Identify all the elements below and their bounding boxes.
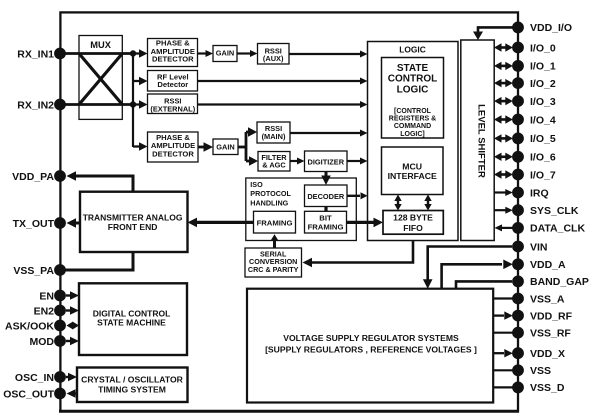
- svg-text:VSS_PA: VSS_PA: [13, 265, 54, 277]
- svg-text:LOGIC: LOGIC: [399, 45, 426, 55]
- svg-text:[SUPPLY REGULATORS , REFERENC: [SUPPLY REGULATORS , REFERENCE VOLTAGES …: [265, 345, 477, 355]
- svg-text:VOLTAGE SUPPLY REGULATOR SYSTE: VOLTAGE SUPPLY REGULATOR SYSTEMS: [283, 333, 459, 343]
- svg-text:128 BYTE: 128 BYTE: [393, 212, 433, 222]
- svg-text:MCU: MCU: [402, 161, 422, 171]
- svg-text:REGISTERS &: REGISTERS &: [389, 116, 436, 123]
- svg-text:CRYSTAL / OSCILLATOR: CRYSTAL / OSCILLATOR: [81, 375, 183, 385]
- svg-text:Detector: Detector: [157, 80, 188, 89]
- svg-text:RX_IN1: RX_IN1: [17, 48, 54, 60]
- svg-text:FRAMING: FRAMING: [257, 219, 293, 228]
- svg-text:GAIN: GAIN: [216, 49, 234, 58]
- svg-text:FRAMING: FRAMING: [308, 222, 344, 231]
- svg-text:I/O_7: I/O_7: [530, 169, 556, 181]
- svg-text:ASK/OOK: ASK/OOK: [5, 320, 54, 332]
- svg-text:STATE MACHINE: STATE MACHINE: [97, 318, 166, 328]
- svg-text:SYS_CLK: SYS_CLK: [530, 205, 579, 217]
- svg-text:TX_OUT: TX_OUT: [13, 218, 55, 230]
- svg-text:DETECTOR: DETECTOR: [152, 54, 194, 63]
- svg-text:EN: EN: [39, 290, 54, 302]
- svg-text:VDD_RF: VDD_RF: [530, 310, 573, 322]
- svg-text:DATA_CLK: DATA_CLK: [530, 223, 585, 235]
- svg-text:MUX: MUX: [90, 40, 111, 50]
- svg-text:VSS: VSS: [530, 365, 551, 377]
- svg-text:FRONT END: FRONT END: [108, 222, 158, 232]
- svg-text:OSC_OUT: OSC_OUT: [3, 388, 54, 400]
- svg-text:(EXTERNAL): (EXTERNAL): [150, 105, 195, 114]
- svg-text:LEVEL SHIFTER: LEVEL SHIFTER: [476, 104, 487, 178]
- svg-text:VSS_A: VSS_A: [530, 293, 565, 305]
- svg-text:CONTROL: CONTROL: [388, 74, 437, 85]
- svg-text:DIGITIZER: DIGITIZER: [308, 157, 345, 166]
- svg-text:VDD_A: VDD_A: [530, 259, 566, 271]
- svg-text:RX_IN2: RX_IN2: [17, 99, 54, 111]
- svg-text:IRQ: IRQ: [530, 187, 549, 199]
- svg-text:LOGIC]: LOGIC]: [400, 131, 425, 138]
- svg-text:LOGIC: LOGIC: [397, 85, 429, 96]
- svg-text:FIFO: FIFO: [403, 223, 423, 233]
- svg-text:I/O_6: I/O_6: [530, 152, 556, 164]
- svg-text:STATE: STATE: [397, 63, 429, 74]
- svg-text:I/O_1: I/O_1: [530, 61, 556, 73]
- svg-text:DETECTOR: DETECTOR: [152, 150, 194, 159]
- svg-text:I/O_3: I/O_3: [530, 96, 556, 108]
- svg-text:I/O_5: I/O_5: [530, 133, 556, 145]
- svg-text:HANDLING: HANDLING: [250, 198, 288, 207]
- svg-text:VSS_RF: VSS_RF: [530, 328, 571, 340]
- svg-text:I/O_4: I/O_4: [530, 114, 556, 126]
- svg-text:PROTOCOL: PROTOCOL: [250, 189, 291, 198]
- svg-text:MOD: MOD: [30, 336, 55, 348]
- svg-text:VDD_X: VDD_X: [530, 348, 565, 360]
- svg-text:I/O_2: I/O_2: [530, 78, 556, 90]
- svg-text:BAND_GAP: BAND_GAP: [530, 276, 589, 288]
- svg-text:EN2: EN2: [34, 305, 55, 317]
- svg-text:VSS_D: VSS_D: [530, 382, 565, 394]
- svg-text:INTERFACE: INTERFACE: [388, 171, 437, 181]
- svg-text:[CONTROL: [CONTROL: [394, 108, 432, 115]
- svg-text:ISO: ISO: [250, 180, 263, 189]
- svg-text:VDD_I/O: VDD_I/O: [530, 22, 572, 34]
- svg-text:COMMAND: COMMAND: [394, 123, 431, 130]
- svg-text:TIMING SYSTEM: TIMING SYSTEM: [98, 384, 166, 394]
- svg-text:GAIN: GAIN: [216, 143, 234, 152]
- svg-text:DECODER: DECODER: [307, 192, 345, 201]
- svg-text:BIT: BIT: [319, 213, 332, 222]
- svg-text:VIN: VIN: [530, 241, 548, 253]
- svg-text:& AGC: & AGC: [262, 161, 286, 170]
- svg-text:CRC & PARITY: CRC & PARITY: [248, 265, 299, 274]
- svg-text:OSC_IN: OSC_IN: [15, 372, 54, 384]
- svg-text:(MAIN): (MAIN): [262, 132, 286, 141]
- svg-text:VDD_PA: VDD_PA: [12, 171, 54, 183]
- svg-text:(AUX): (AUX): [263, 54, 284, 63]
- svg-text:I/O_0: I/O_0: [530, 42, 556, 54]
